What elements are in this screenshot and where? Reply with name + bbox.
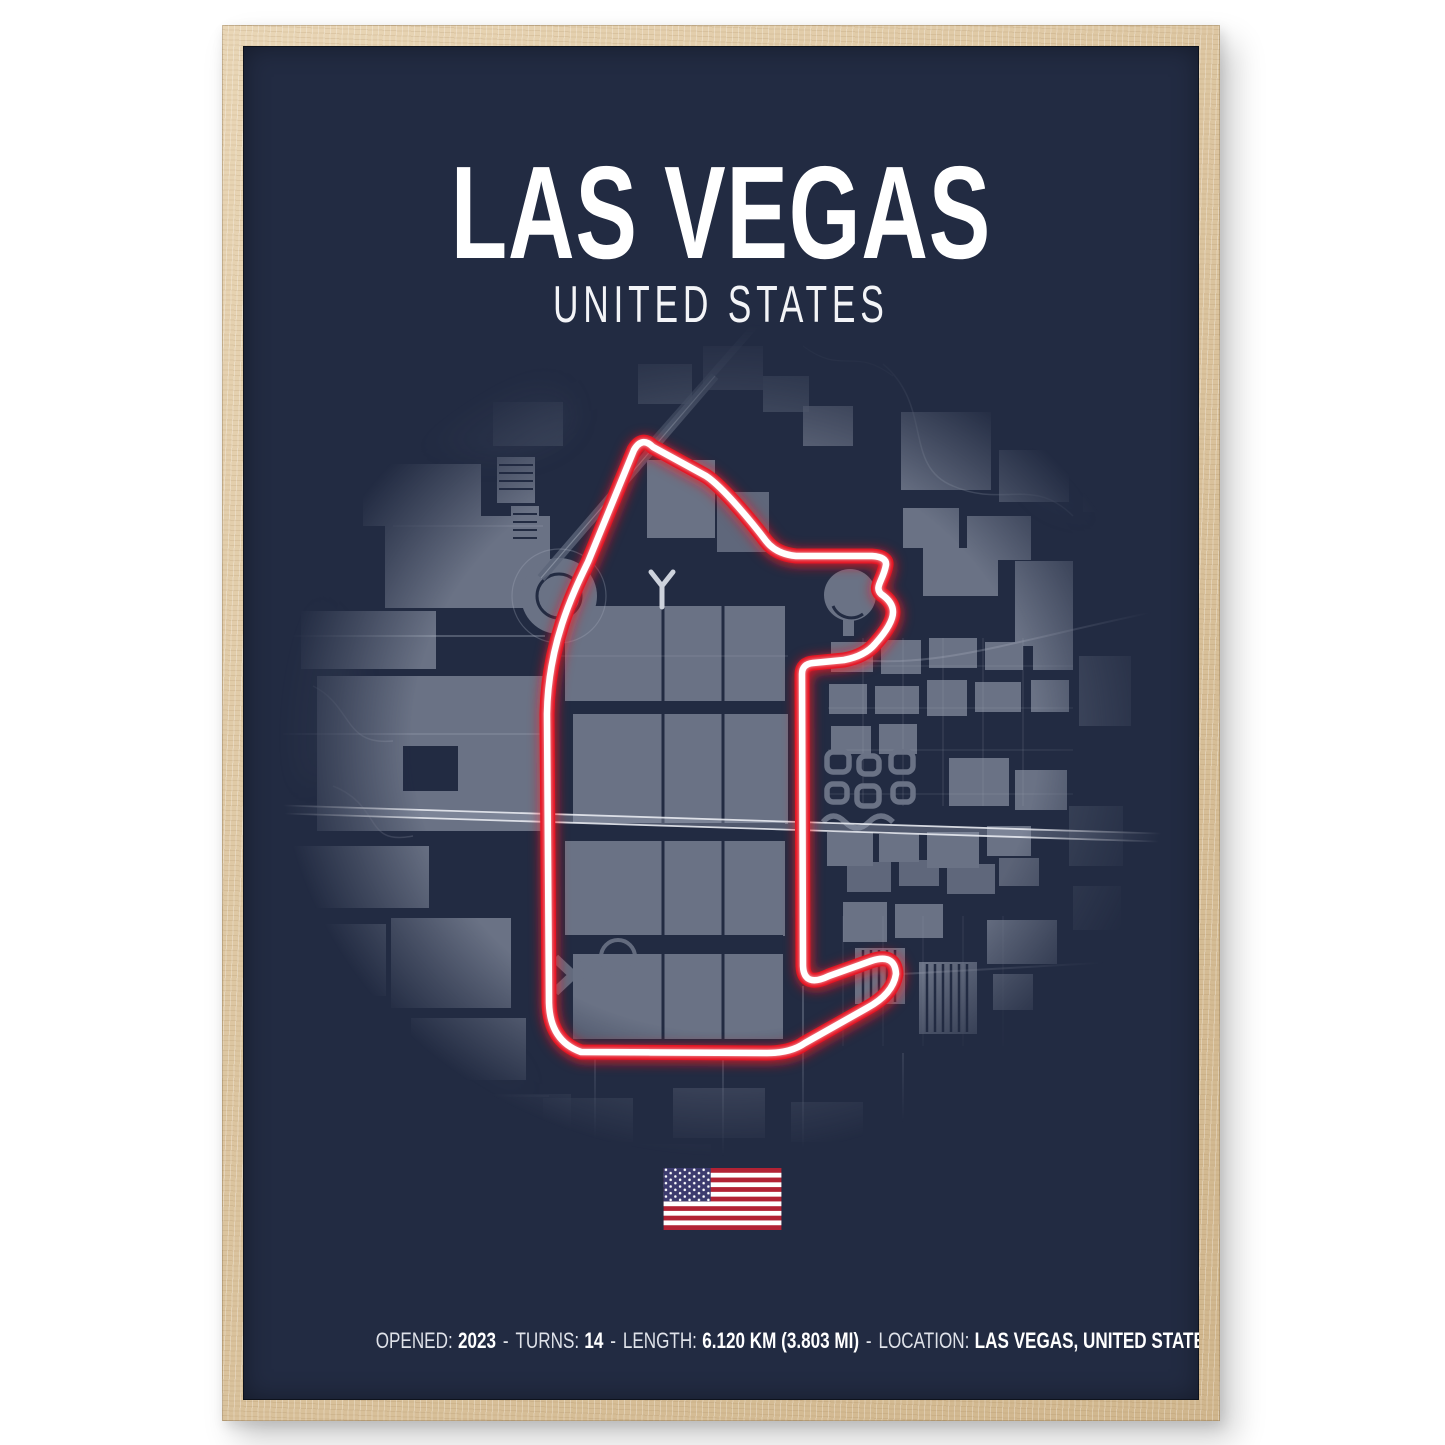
turns-label: TURNS: (515, 1328, 579, 1353)
opened-value: 2023 (458, 1328, 496, 1353)
length-label: LENGTH: (623, 1328, 697, 1353)
sphere-circle (824, 569, 876, 621)
opened-label: OPENED: (376, 1328, 453, 1353)
residential-squiggles (823, 752, 913, 828)
circuit-poster: LAS VEGAS UNITED STATES (243, 46, 1199, 1400)
location-label: LOCATION: (878, 1328, 969, 1353)
poster-title: LAS VEGAS (243, 147, 1199, 279)
turns-value: 14 (584, 1328, 603, 1353)
separator: - (866, 1328, 872, 1353)
poster-frame: LAS VEGAS UNITED STATES (222, 25, 1220, 1421)
circuit-stats: OPENED:2023-TURNS:14-LENGTH:6.120 KM (3.… (243, 1327, 1199, 1354)
separator: - (610, 1328, 616, 1353)
us-flag-graphic (663, 1168, 782, 1230)
separator: - (503, 1328, 509, 1353)
length-value: 6.120 KM (3.803 MI) (702, 1328, 859, 1353)
location-value: LAS VEGAS, UNITED STATES (975, 1328, 1199, 1353)
y-building (651, 572, 673, 607)
us-flag (663, 1168, 782, 1230)
poster-subtitle: UNITED STATES (243, 279, 1199, 331)
